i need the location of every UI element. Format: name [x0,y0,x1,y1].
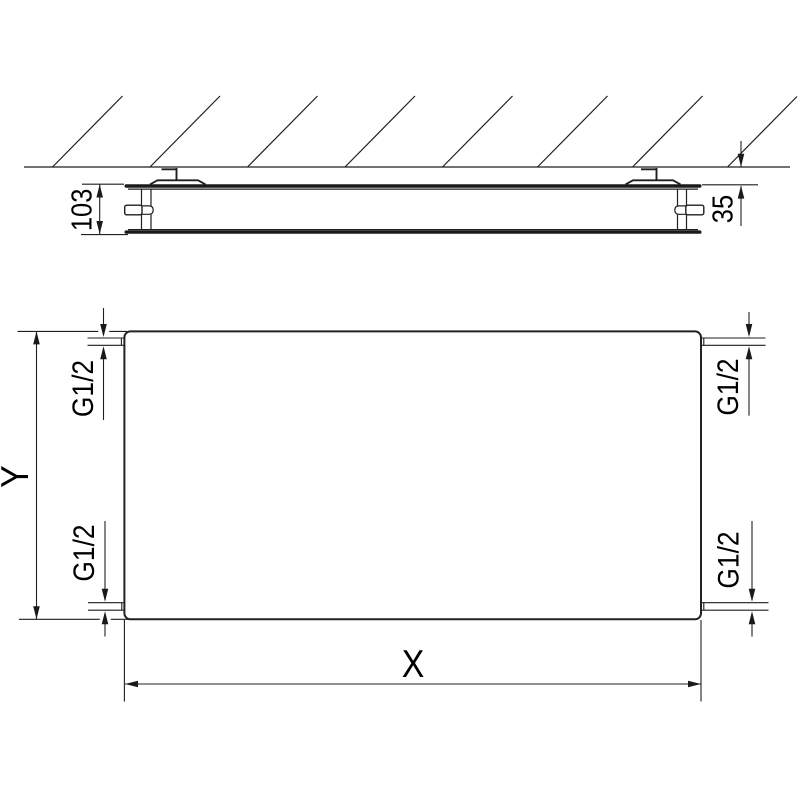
svg-text:G1/2: G1/2 [66,360,100,417]
svg-text:G1/2: G1/2 [711,358,745,415]
svg-text:35: 35 [706,195,739,223]
svg-text:Y: Y [0,465,37,488]
svg-text:G1/2: G1/2 [711,531,745,588]
svg-text:X: X [402,642,425,686]
svg-text:103: 103 [65,189,98,232]
svg-text:G1/2: G1/2 [67,524,101,581]
